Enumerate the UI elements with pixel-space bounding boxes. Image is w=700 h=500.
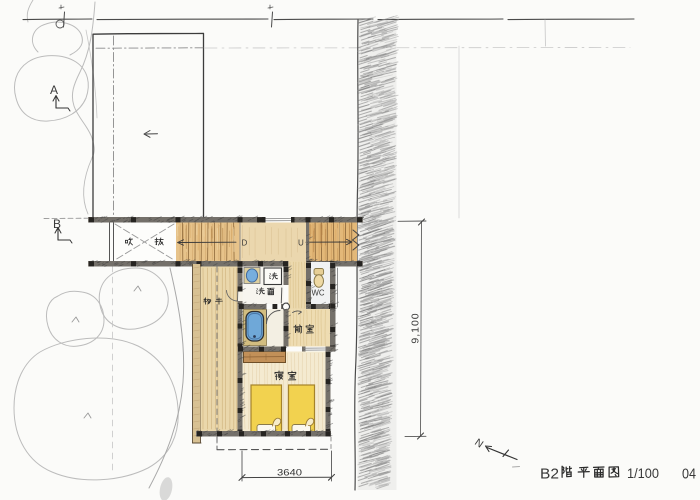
svg-text:04: 04 [682, 467, 696, 483]
svg-text:WC: WC [312, 289, 325, 298]
svg-text:3640: 3640 [277, 468, 302, 479]
svg-text:1/100: 1/100 [627, 465, 659, 481]
svg-text:9,100: 9,100 [410, 312, 422, 343]
svg-text:U: U [298, 239, 304, 248]
svg-text:D: D [242, 239, 248, 248]
svg-text:B2: B2 [540, 466, 559, 483]
svg-text:A: A [50, 83, 58, 97]
